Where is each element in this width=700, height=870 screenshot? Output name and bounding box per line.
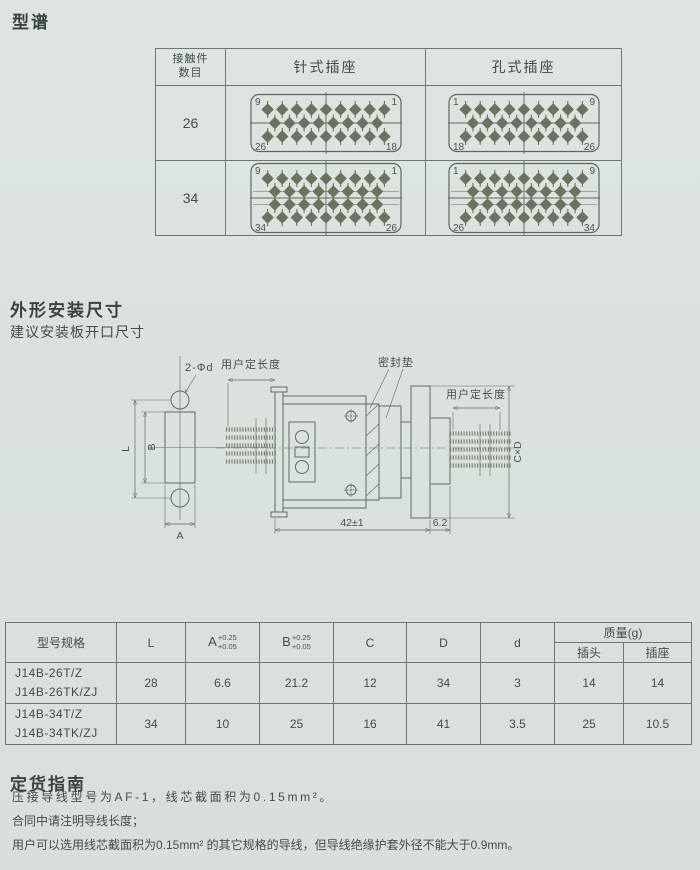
spectrum-table: 接触件数目 针式插座 孔式插座 26 912618 191826 34 9134… bbox=[155, 48, 622, 236]
model-line1: J14B-26T/Z bbox=[15, 666, 83, 680]
dim-L-label: L bbox=[120, 446, 132, 452]
right-cable bbox=[450, 424, 512, 476]
svg-text:18: 18 bbox=[453, 142, 465, 153]
svg-text:1: 1 bbox=[391, 166, 397, 177]
pin-face-diagram-26: 912618 bbox=[226, 92, 425, 154]
col-model: 型号规格 bbox=[6, 623, 117, 663]
col-plug-mass: 插头 bbox=[555, 643, 624, 663]
value-B: 21.2 bbox=[260, 663, 334, 704]
col-C: C bbox=[334, 623, 407, 663]
dim-overall-label: 42±1 bbox=[340, 517, 363, 529]
model-line1: J14B-34T/Z bbox=[15, 707, 83, 721]
pin-face-diagram-34: 913426 bbox=[226, 161, 425, 235]
ordering-line-3: 用户可以选用线芯截面积为0.15mm² 的其它规格的导线，但导线绝缘护套外径不能… bbox=[12, 836, 519, 853]
seal-label: 密封垫 bbox=[378, 355, 414, 369]
value-A: 6.6 bbox=[186, 663, 260, 704]
svg-text:18: 18 bbox=[385, 142, 397, 153]
section-title-outline: 外形安装尺寸 bbox=[10, 296, 124, 321]
contact-count: 34 bbox=[156, 161, 226, 236]
model-line2: J14B-26TK/ZJ bbox=[15, 685, 98, 699]
dims-row-34: J14B-34T/ZJ14B-34TK/ZJ 34 10 25 16 41 3.… bbox=[6, 704, 692, 745]
left-cable bbox=[226, 418, 276, 474]
hole-face-diagram-26: 191826 bbox=[426, 92, 621, 154]
value-d: 3.5 bbox=[481, 704, 555, 745]
panel-cutout-view: 2-Φd L B A bbox=[120, 356, 268, 542]
dim-A-label: A bbox=[176, 530, 183, 542]
value-A: 10 bbox=[186, 704, 260, 745]
spectrum-col-pin-type: 针式插座 bbox=[226, 49, 426, 86]
user-length-right-label: 用户定长度 bbox=[446, 387, 506, 401]
spectrum-row-34: 34 913426 192634 bbox=[156, 161, 622, 236]
spectrum-col-hole-type: 孔式插座 bbox=[426, 49, 622, 86]
user-length-left-label: 用户定长度 bbox=[221, 357, 281, 371]
col-d: d bbox=[481, 623, 555, 663]
spectrum-row-26: 26 912618 191826 bbox=[156, 86, 622, 161]
svg-text:9: 9 bbox=[589, 166, 595, 177]
svg-text:26: 26 bbox=[255, 142, 267, 153]
spectrum-header-row: 接触件数目 针式插座 孔式插座 bbox=[156, 49, 622, 86]
datasheet-page: 型谱 接触件数目 针式插座 孔式插座 26 912618 191826 34 9… bbox=[0, 0, 700, 870]
model-line2: J14B-34TK/ZJ bbox=[15, 726, 98, 740]
value-d: 3 bbox=[481, 663, 555, 704]
holes-label: 2-Φd bbox=[185, 362, 214, 374]
outline-subtitle: 建议安装板开口尺寸 bbox=[10, 322, 145, 342]
value-L: 28 bbox=[117, 663, 186, 704]
svg-text:9: 9 bbox=[255, 97, 261, 108]
value-C: 12 bbox=[334, 663, 407, 704]
svg-text:1: 1 bbox=[391, 97, 397, 108]
svg-text:1: 1 bbox=[453, 166, 459, 177]
contacts-header-line2: 数目 bbox=[179, 67, 203, 79]
model-cell: J14B-34T/ZJ14B-34TK/ZJ bbox=[6, 704, 117, 745]
svg-text:26: 26 bbox=[385, 223, 397, 234]
value-socket-mass: 10.5 bbox=[624, 704, 692, 745]
svg-text:9: 9 bbox=[589, 97, 595, 108]
ordering-line-2: 合同中请注明导线长度； bbox=[12, 812, 144, 829]
col-mass: 质量(g) bbox=[555, 623, 692, 643]
model-cell: J14B-26T/ZJ14B-26TK/ZJ bbox=[6, 663, 117, 704]
connector-side-view: 用户定长度 密封垫 用户定长度 C×D 42±1 6.2 bbox=[216, 355, 524, 534]
col-B: B+0.25+0.05 bbox=[260, 623, 334, 663]
outline-drawing: 2-Φd L B A bbox=[118, 350, 588, 562]
value-D: 41 bbox=[407, 704, 481, 745]
dims-header-row-1: 型号规格 L A+0.25+0.05 B+0.25+0.05 C D d 质量(… bbox=[6, 623, 692, 643]
col-A-base: A bbox=[208, 634, 217, 649]
svg-text:34: 34 bbox=[255, 223, 267, 234]
col-L: L bbox=[117, 623, 186, 663]
col-A-lower-tol: +0.05 bbox=[218, 643, 237, 652]
value-D: 34 bbox=[407, 663, 481, 704]
svg-text:9: 9 bbox=[255, 166, 261, 177]
col-A: A+0.25+0.05 bbox=[186, 623, 260, 663]
value-plug-mass: 25 bbox=[555, 704, 624, 745]
dimensions-table: 型号规格 L A+0.25+0.05 B+0.25+0.05 C D d 质量(… bbox=[5, 622, 692, 745]
col-B-lower-tol: +0.05 bbox=[292, 643, 311, 652]
dim-flange-label: 6.2 bbox=[433, 517, 448, 529]
svg-text:34: 34 bbox=[583, 223, 595, 234]
dim-cxd-label: C×D bbox=[512, 441, 524, 463]
col-B-base: B bbox=[282, 634, 291, 649]
svg-text:26: 26 bbox=[583, 142, 595, 153]
svg-text:26: 26 bbox=[453, 223, 465, 234]
value-C: 16 bbox=[334, 704, 407, 745]
seal-gasket bbox=[366, 404, 379, 500]
svg-text:1: 1 bbox=[453, 97, 459, 108]
col-D: D bbox=[407, 623, 481, 663]
contacts-header-line1: 接触件 bbox=[173, 53, 209, 65]
contact-count: 26 bbox=[156, 86, 226, 161]
value-plug-mass: 14 bbox=[555, 663, 624, 704]
value-L: 34 bbox=[117, 704, 186, 745]
value-B: 25 bbox=[260, 704, 334, 745]
ordering-line-1: 压接导线型号为AF-1，线芯截面积为0.15mm²。 bbox=[12, 788, 334, 805]
spectrum-col-contacts: 接触件数目 bbox=[156, 49, 226, 86]
section-title-spectrum: 型谱 bbox=[12, 8, 50, 33]
col-socket-mass: 插座 bbox=[624, 643, 692, 663]
hole-face-diagram-34: 192634 bbox=[426, 161, 621, 235]
dims-row-26: J14B-26T/ZJ14B-26TK/ZJ 28 6.6 21.2 12 34… bbox=[6, 663, 692, 704]
dim-B-label: B bbox=[146, 443, 158, 450]
value-socket-mass: 14 bbox=[624, 663, 692, 704]
